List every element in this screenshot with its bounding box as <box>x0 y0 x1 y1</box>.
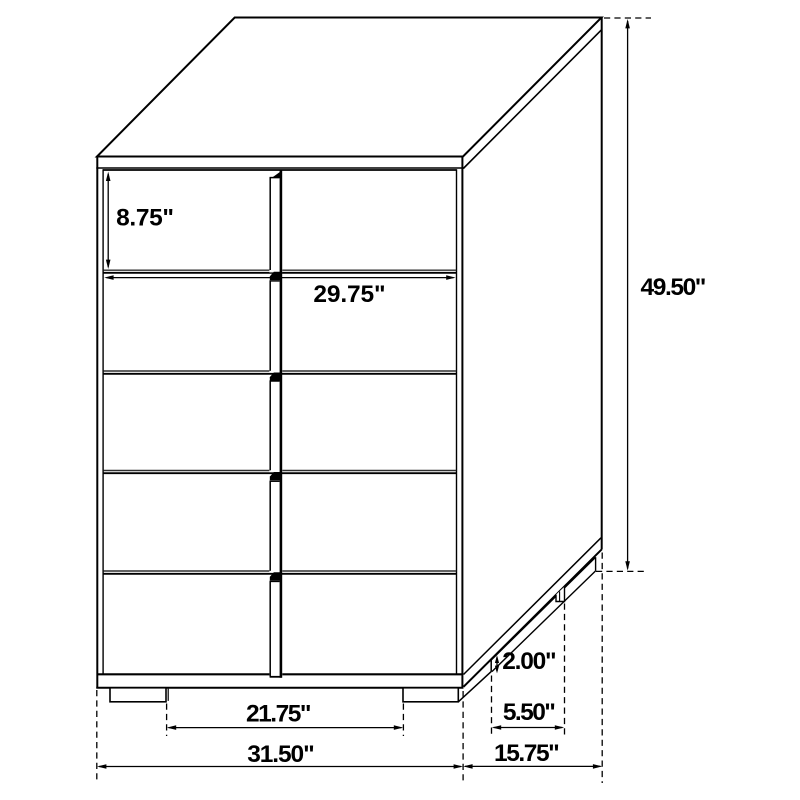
svg-text:29.75": 29.75" <box>313 281 385 308</box>
svg-text:21.75": 21.75" <box>246 701 310 728</box>
svg-text:31.50": 31.50" <box>247 741 313 768</box>
svg-text:8.75": 8.75" <box>116 204 174 231</box>
svg-text:15.75": 15.75" <box>494 740 558 767</box>
svg-text:2.00": 2.00" <box>502 648 555 675</box>
svg-text:5.50": 5.50" <box>503 699 554 726</box>
svg-text:49.50": 49.50" <box>641 274 706 301</box>
